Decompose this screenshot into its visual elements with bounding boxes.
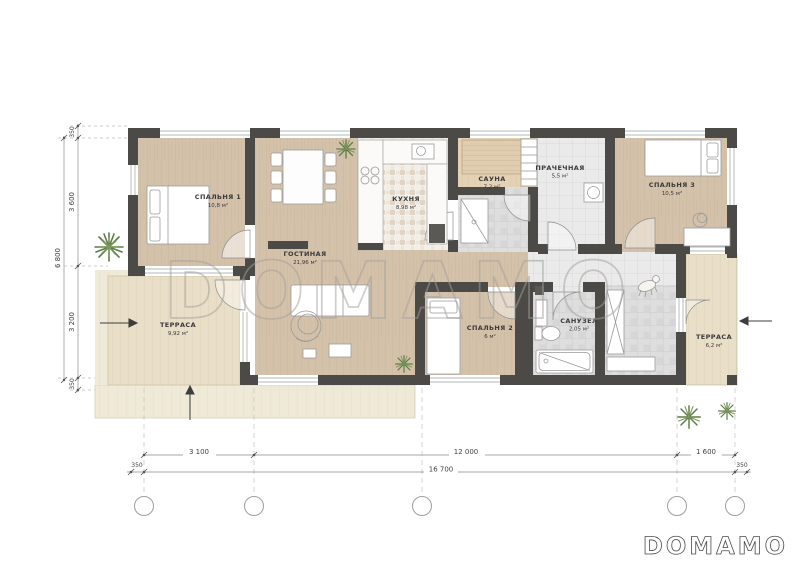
window-bottom-living <box>258 375 318 385</box>
plant-icon <box>678 406 700 428</box>
window-hall-terrace <box>676 298 686 332</box>
window-top-bedroom1 <box>160 128 250 138</box>
dim-bottom-overall: 16 700 <box>429 466 454 474</box>
dim-left-350-bottom: 350 <box>69 378 76 390</box>
deck-floor <box>95 385 415 418</box>
bench-icon <box>607 357 655 371</box>
washer-icon <box>584 183 603 202</box>
floor-plan-page: СПАЛЬНЯ 1 10,8 м² ГОСТИНАЯ 21,96 м² КУХН… <box>0 0 800 565</box>
window-bottom-bedroom2 <box>430 375 500 385</box>
dim-bottom-350-right: 350 <box>736 462 748 469</box>
terrace-right-floor <box>686 254 737 385</box>
dim-left-3600: 3 600 <box>68 192 76 212</box>
svg-text:САУНА: САУНА <box>478 175 505 183</box>
plant-icon <box>337 140 355 158</box>
bathtub-icon <box>536 350 593 373</box>
window-top-dining <box>280 128 350 138</box>
logo-text: DOMAMO <box>643 532 788 560</box>
window-right-bedroom3 <box>727 148 737 205</box>
window-top-sauna <box>470 128 530 138</box>
grid-markers <box>135 497 745 516</box>
svg-text:СПАЛЬНЯ 3: СПАЛЬНЯ 3 <box>649 181 695 189</box>
dim-left-overall: 6 800 <box>54 248 62 268</box>
svg-text:5,5 м²: 5,5 м² <box>552 173 569 180</box>
closet-shelves-icon <box>521 139 537 186</box>
svg-text:10,8 м²: 10,8 м² <box>208 202 228 209</box>
dim-left-350-top: 350 <box>69 126 76 138</box>
entry-arrow-right <box>740 317 772 325</box>
svg-text:8,98 м²: 8,98 м² <box>396 204 416 211</box>
dim-bottom-12000: 12 000 <box>454 448 479 456</box>
dim-bottom-3100: 3 100 <box>189 448 209 456</box>
svg-text:ПРАЧЕЧНАЯ: ПРАЧЕЧНАЯ <box>535 164 584 172</box>
svg-text:КУХНЯ: КУХНЯ <box>392 195 420 203</box>
dim-left-3200: 3 200 <box>68 312 76 332</box>
dim-bottom-350-left: 350 <box>131 462 143 469</box>
watermark-text: DOMAMO <box>164 247 637 337</box>
plant-icon <box>95 233 123 261</box>
svg-text:6,2 м²: 6,2 м² <box>706 342 723 349</box>
bed3-icon <box>645 140 721 176</box>
floor-plan-canvas: СПАЛЬНЯ 1 10,8 м² ГОСТИНАЯ 21,96 м² КУХН… <box>0 0 800 565</box>
shower-icon <box>461 199 488 243</box>
dim-bottom-1600: 1 600 <box>696 448 716 456</box>
dining-table-icon <box>271 150 336 204</box>
plant-icon <box>719 403 736 420</box>
svg-text:10,5 м²: 10,5 м² <box>662 190 682 197</box>
window-left-bedroom1 <box>128 165 138 195</box>
svg-text:СПАЛЬНЯ 1: СПАЛЬНЯ 1 <box>195 193 242 201</box>
svg-text:ТЕРРАСА: ТЕРРАСА <box>696 333 732 341</box>
plant-icon <box>396 356 413 373</box>
svg-text:7,2 м²: 7,2 м² <box>484 184 501 191</box>
window-top-bedroom3 <box>625 128 705 138</box>
